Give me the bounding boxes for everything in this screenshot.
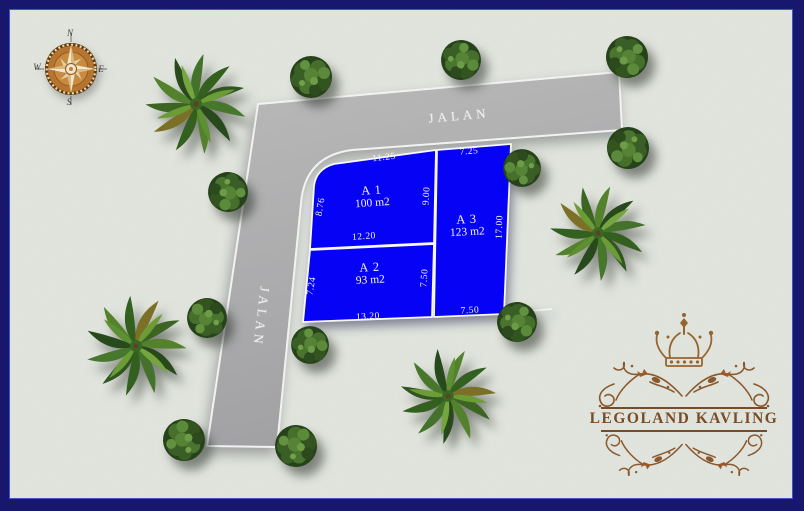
- plot-a2-name: A 2: [355, 259, 385, 275]
- compass-south-label: S: [67, 97, 72, 107]
- logo-rule-top: [601, 407, 767, 409]
- plot-a1-area: 100 m2: [355, 196, 391, 212]
- site-plan-map: JALAN JALAN A 1 100 m2 A 2 93 m2 A 3 123…: [10, 10, 792, 498]
- measure-a1-bottom: 12.20: [352, 231, 377, 243]
- measure-a3-bottom: 7.50: [460, 306, 479, 317]
- plot-a3-label: A 3 123 m2: [449, 211, 485, 240]
- measure-a3-top: 7.25: [459, 146, 478, 158]
- measure-a1-right: 9.00: [421, 186, 432, 205]
- compass-east-label: E: [98, 64, 104, 74]
- logo-rule-bottom: [601, 430, 767, 432]
- measure-a2-bottom: 13.20: [356, 311, 380, 322]
- measure-a2-right: 7.50: [419, 268, 430, 287]
- measure-a3-right: 17.00: [495, 215, 506, 239]
- compass-north-label: N: [67, 28, 73, 38]
- plot-a1-label: A 1 100 m2: [354, 182, 391, 212]
- plot-a3-area: 123 m2: [450, 226, 485, 241]
- site-plan-poster: JALAN JALAN A 1 100 m2 A 2 93 m2 A 3 123…: [0, 0, 804, 511]
- plot-a2-label: A 2 93 m2: [355, 259, 385, 288]
- compass-west-label: W: [33, 62, 41, 72]
- plot-a2-area: 93 m2: [356, 274, 386, 289]
- logo-title: LEGOLAND KAVLING: [590, 410, 779, 428]
